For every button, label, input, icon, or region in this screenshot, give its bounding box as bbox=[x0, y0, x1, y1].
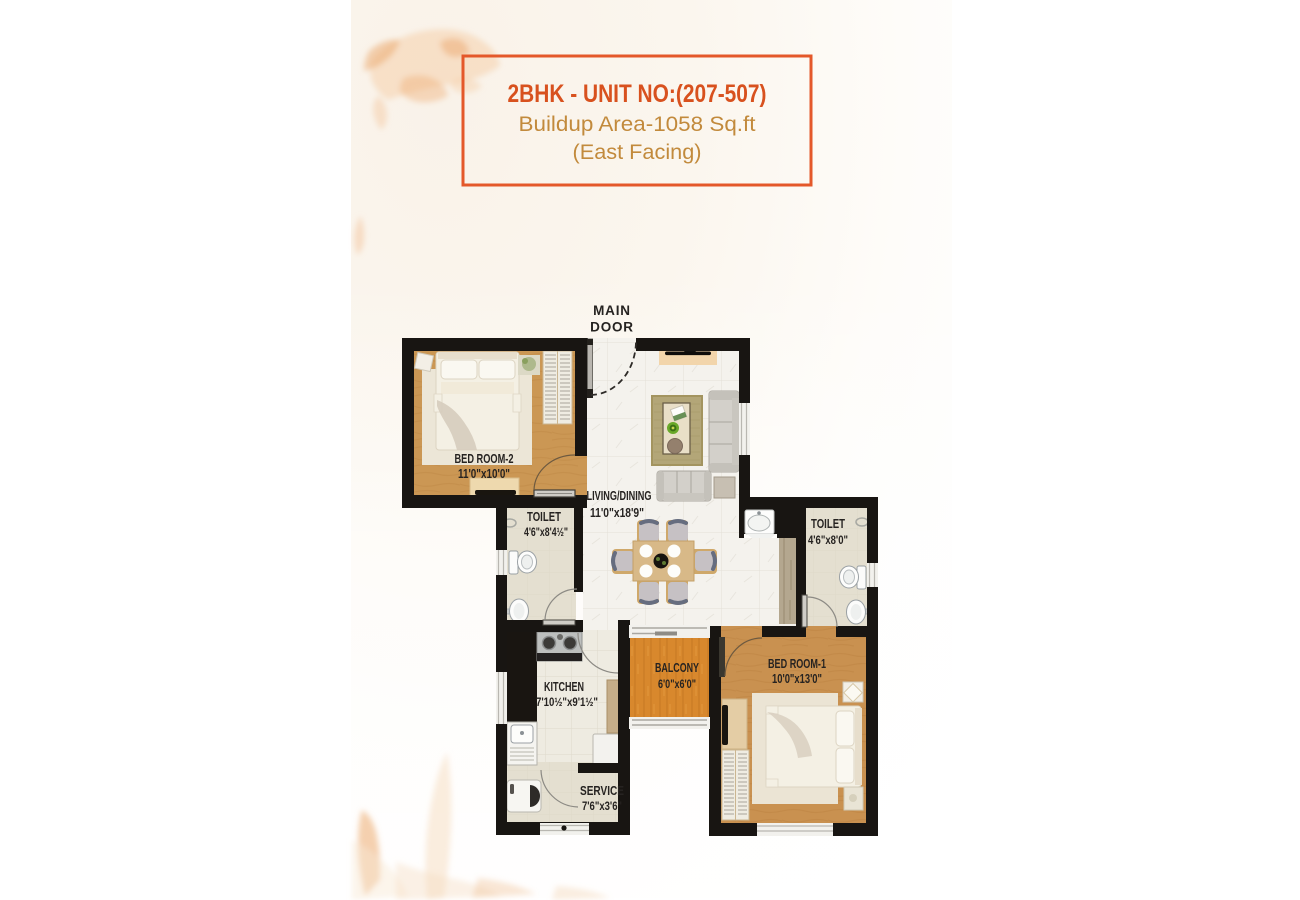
svg-text:4'6"x8'4½": 4'6"x8'4½" bbox=[524, 525, 568, 539]
svg-text:7'10½"x9'1½": 7'10½"x9'1½" bbox=[536, 695, 598, 709]
svg-text:11'0"x18'9": 11'0"x18'9" bbox=[590, 505, 644, 520]
svg-text:2BHK - UNIT NO:(207-507): 2BHK - UNIT NO:(207-507) bbox=[508, 80, 767, 108]
svg-text:SERVICE: SERVICE bbox=[580, 783, 624, 798]
svg-text:KITCHEN: KITCHEN bbox=[544, 679, 584, 694]
svg-text:MAIN: MAIN bbox=[593, 303, 631, 318]
svg-text:(East Facing): (East Facing) bbox=[573, 140, 702, 164]
svg-text:7'6"x3'6": 7'6"x3'6" bbox=[582, 799, 622, 813]
svg-text:BED ROOM-2: BED ROOM-2 bbox=[455, 451, 514, 466]
svg-text:10'0"x13'0": 10'0"x13'0" bbox=[772, 671, 822, 686]
svg-text:4'6"x8'0": 4'6"x8'0" bbox=[808, 533, 848, 547]
svg-text:DOOR: DOOR bbox=[590, 320, 634, 335]
svg-text:Buildup Area-1058 Sq.ft: Buildup Area-1058 Sq.ft bbox=[519, 112, 756, 136]
svg-text:11'0"x10'0": 11'0"x10'0" bbox=[458, 466, 510, 481]
svg-text:BED ROOM-1: BED ROOM-1 bbox=[768, 656, 826, 671]
svg-text:BALCONY: BALCONY bbox=[655, 660, 699, 675]
svg-text:LIVING/DINING: LIVING/DINING bbox=[587, 488, 652, 503]
svg-text:6'0"x6'0": 6'0"x6'0" bbox=[658, 677, 696, 691]
svg-text:TOILET: TOILET bbox=[527, 509, 561, 524]
svg-text:TOILET: TOILET bbox=[811, 516, 845, 531]
